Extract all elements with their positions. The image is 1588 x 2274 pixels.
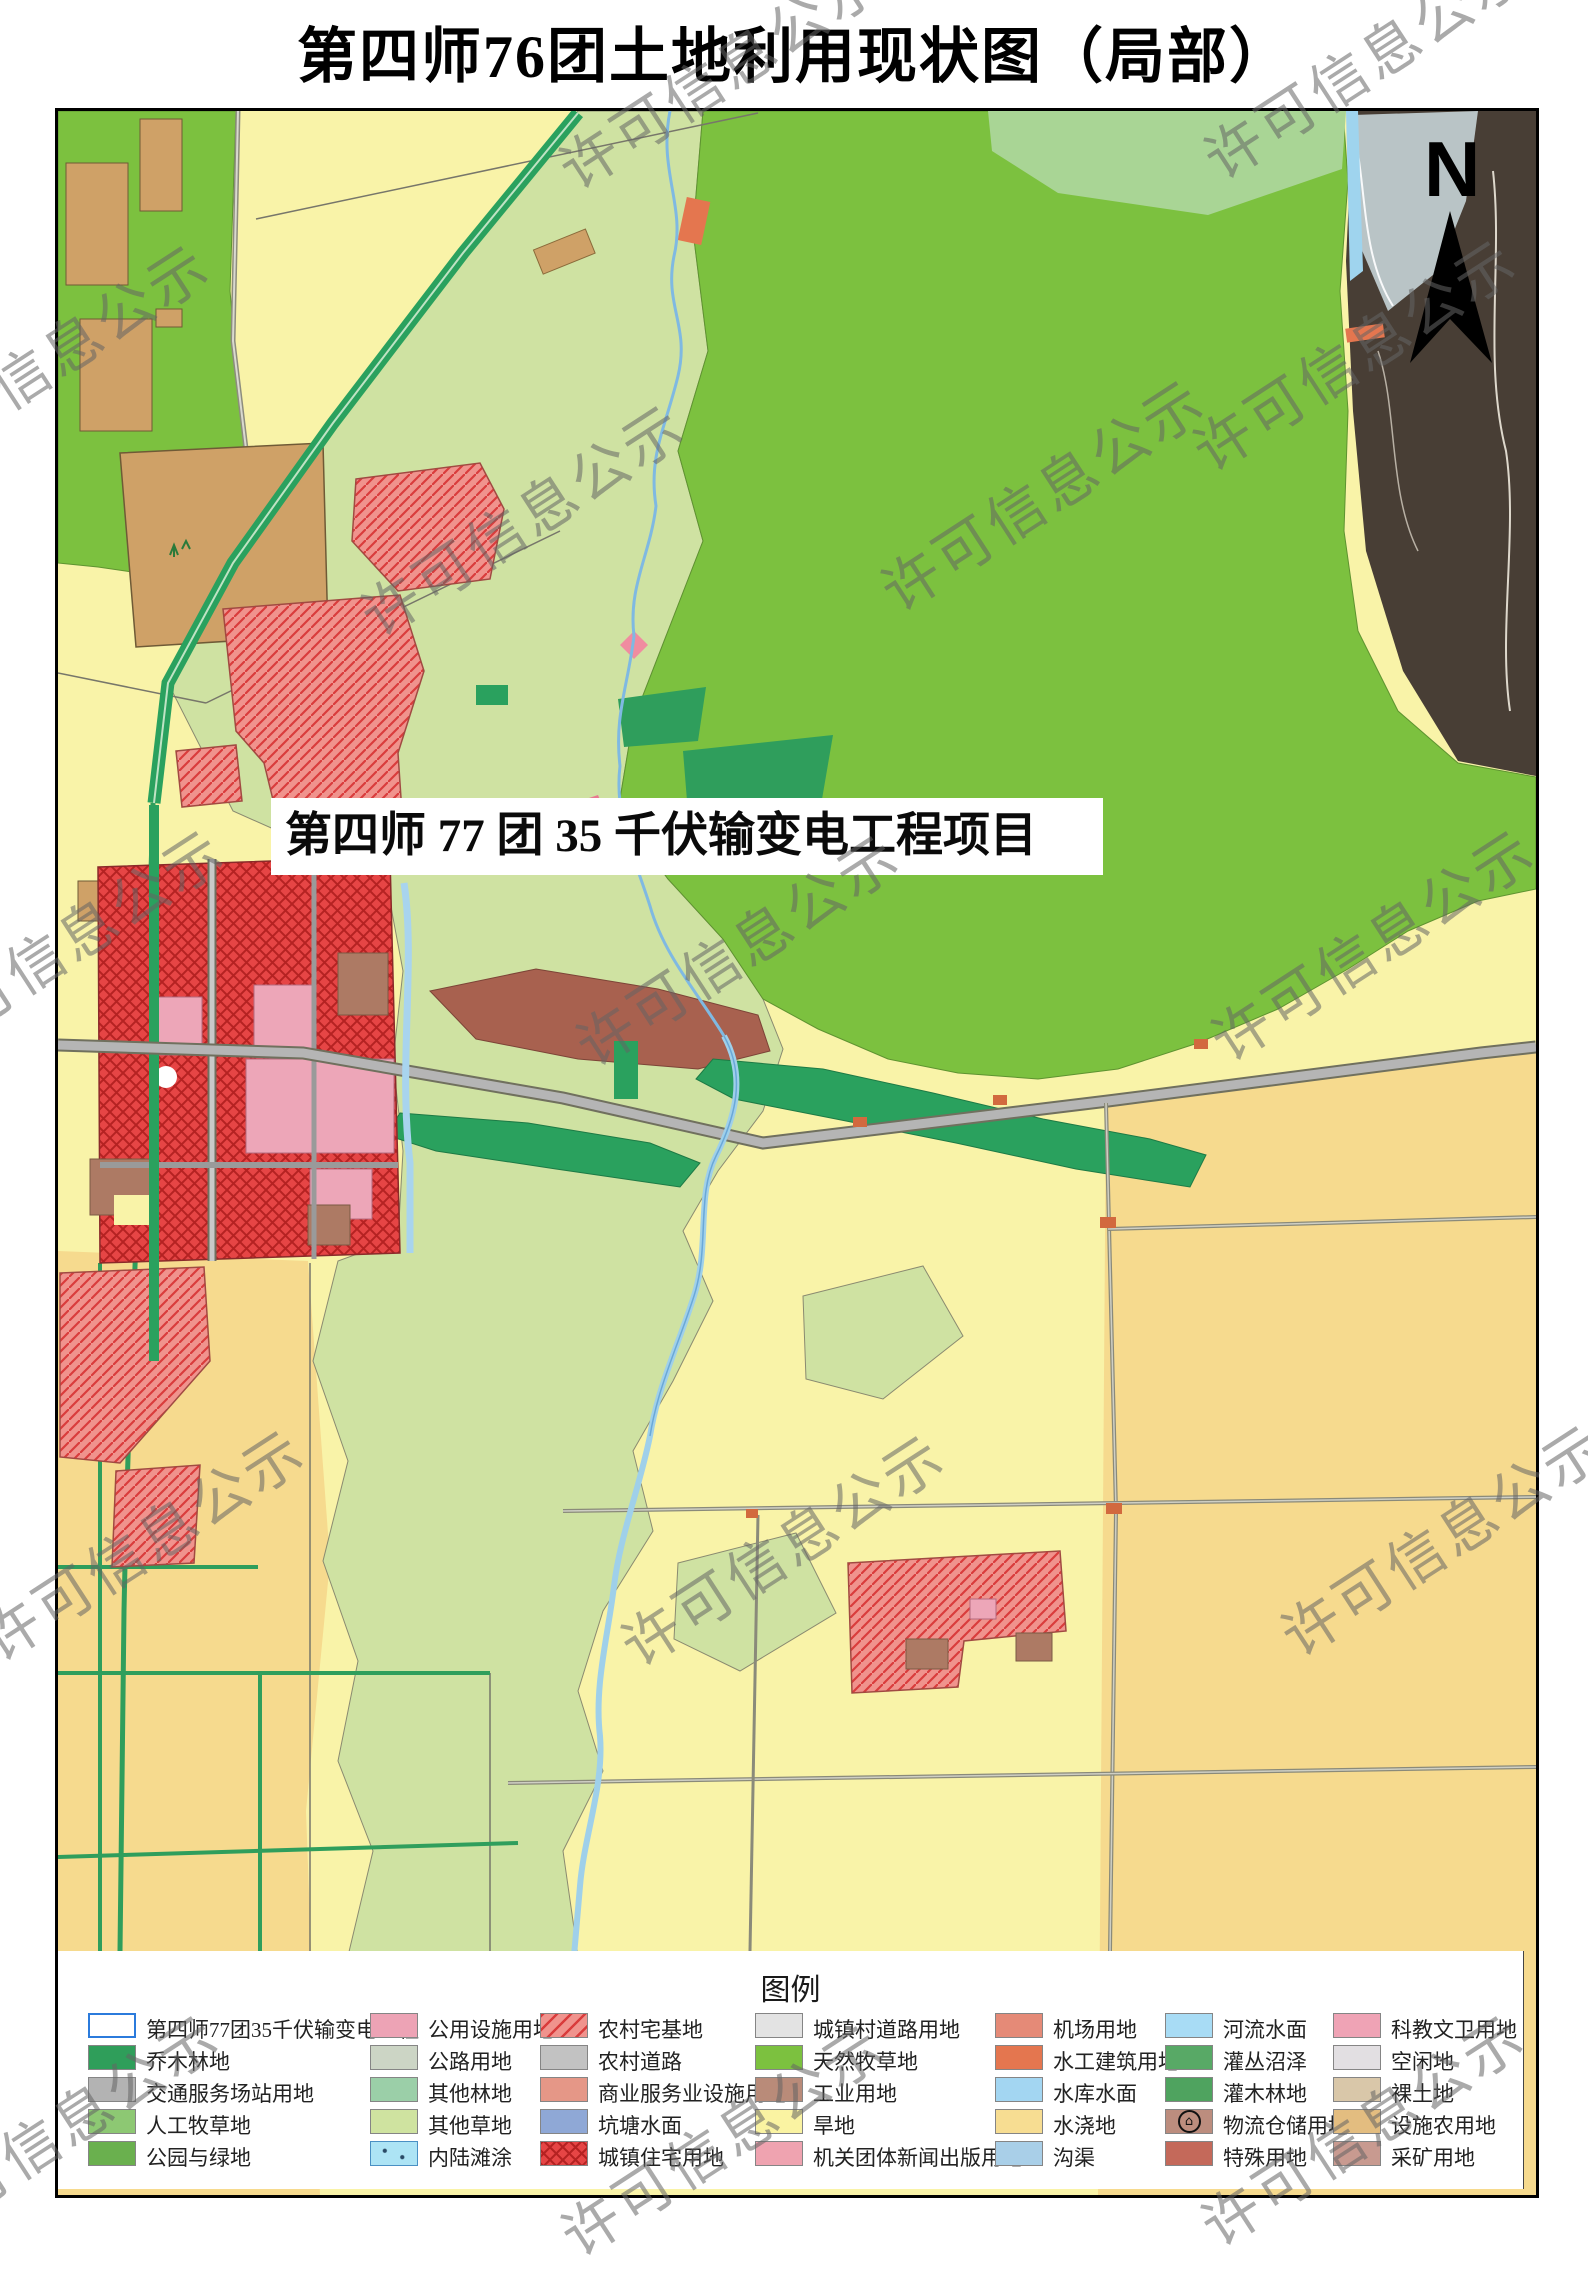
north-label: N xyxy=(1424,125,1480,213)
legend-swatch xyxy=(88,2045,136,2070)
legend-label: 裸土地 xyxy=(1391,2078,1454,2108)
legend-swatch xyxy=(1165,2013,1213,2038)
legend-label: 灌木林地 xyxy=(1223,2078,1307,2108)
legend-label: 河流水面 xyxy=(1223,2014,1307,2044)
legend-label: 机关团体新闻出版用地 xyxy=(813,2142,1023,2172)
map-frame: N 第四师 77 团 35 千伏输变电工程项目 图例 第四师77团35千伏输变电… xyxy=(55,108,1539,2198)
legend-label: 沟渠 xyxy=(1053,2142,1095,2172)
legend-swatch xyxy=(540,2109,588,2134)
legend-label: 公园与绿地 xyxy=(146,2142,251,2172)
legend-label: 内陆滩涂 xyxy=(428,2142,512,2172)
legend-label: 工业用地 xyxy=(813,2078,897,2108)
legend-title: 图例 xyxy=(58,1965,1523,2009)
legend-swatch xyxy=(370,2077,418,2102)
legend-swatch xyxy=(1333,2141,1381,2166)
legend-label: 设施农用地 xyxy=(1391,2110,1496,2140)
legend-swatch xyxy=(995,2077,1043,2102)
legend-label: 坑塘水面 xyxy=(598,2110,682,2140)
legend-label: 科教文卫用地 xyxy=(1391,2014,1517,2044)
legend-swatch xyxy=(370,2045,418,2070)
legend-label: 灌丛沼泽 xyxy=(1223,2046,1307,2076)
legend-label: 其他草地 xyxy=(428,2110,512,2140)
legend-label: 物流仓储用地 xyxy=(1223,2110,1349,2140)
legend-swatch xyxy=(755,2045,803,2070)
legend-swatch xyxy=(370,2141,418,2166)
legend-swatch xyxy=(88,2141,136,2166)
legend-swatch xyxy=(540,2045,588,2070)
page: { "title": "第四师76团土地利用现状图（局部）", "map": {… xyxy=(0,0,1588,2246)
page-title: 第四师76团土地利用现状图（局部） xyxy=(0,8,1588,95)
legend-label: 公路用地 xyxy=(428,2046,512,2076)
legend-swatch xyxy=(1333,2013,1381,2038)
map-canvas: N xyxy=(58,111,1536,2195)
legend-label: 旱地 xyxy=(813,2110,855,2140)
legend-swatch xyxy=(1165,2045,1213,2070)
legend-swatch xyxy=(370,2109,418,2134)
legend-swatch xyxy=(995,2045,1043,2070)
legend-swatch xyxy=(540,2077,588,2102)
warehouse-icon: ⌂ xyxy=(1178,2110,1201,2133)
legend-swatch xyxy=(1165,2141,1213,2166)
legend-swatch xyxy=(1333,2077,1381,2102)
legend-label: 人工牧草地 xyxy=(146,2110,251,2140)
legend-swatch xyxy=(755,2077,803,2102)
legend-label: 天然牧草地 xyxy=(813,2046,918,2076)
legend-swatch xyxy=(995,2109,1043,2134)
legend-label: 水浇地 xyxy=(1053,2110,1116,2140)
legend-swatch xyxy=(1333,2109,1381,2134)
legend-swatch xyxy=(540,2141,588,2166)
legend-swatch: ⌂ xyxy=(1165,2109,1213,2134)
legend-label: 水工建筑用地 xyxy=(1053,2046,1179,2076)
legend-swatch xyxy=(540,2013,588,2038)
legend-label: 城镇村道路用地 xyxy=(813,2014,960,2044)
legend-label: 空闲地 xyxy=(1391,2046,1454,2076)
legend-panel: 图例 第四师77团35千伏输变电工程乔木林地交通服务场站用地人工牧草地公园与绿地… xyxy=(58,1951,1524,2189)
legend-swatch xyxy=(1333,2045,1381,2070)
legend-label: 机场用地 xyxy=(1053,2014,1137,2044)
legend-label: 乔木林地 xyxy=(146,2046,230,2076)
legend-swatch xyxy=(370,2013,418,2038)
legend-swatch xyxy=(995,2013,1043,2038)
legend-label: 其他林地 xyxy=(428,2078,512,2108)
legend-swatch xyxy=(1165,2077,1213,2102)
legend-swatch xyxy=(755,2141,803,2166)
legend-swatch xyxy=(755,2013,803,2038)
legend-label: 交通服务场站用地 xyxy=(146,2078,314,2108)
legend-swatch xyxy=(88,2077,136,2102)
project-label: 第四师 77 团 35 千伏输变电工程项目 xyxy=(271,798,1103,875)
legend-label: 采矿用地 xyxy=(1391,2142,1475,2172)
legend-label: 公用设施用地 xyxy=(428,2014,554,2044)
legend-label: 农村宅基地 xyxy=(598,2014,703,2044)
legend-label: 农村道路 xyxy=(598,2046,682,2076)
legend-swatch xyxy=(88,2109,136,2134)
legend-swatch xyxy=(995,2141,1043,2166)
legend-label: 水库水面 xyxy=(1053,2078,1137,2108)
legend-swatch xyxy=(88,2013,136,2038)
legend-label: 城镇住宅用地 xyxy=(598,2142,724,2172)
legend-swatch xyxy=(755,2109,803,2134)
legend-label: 特殊用地 xyxy=(1223,2142,1307,2172)
